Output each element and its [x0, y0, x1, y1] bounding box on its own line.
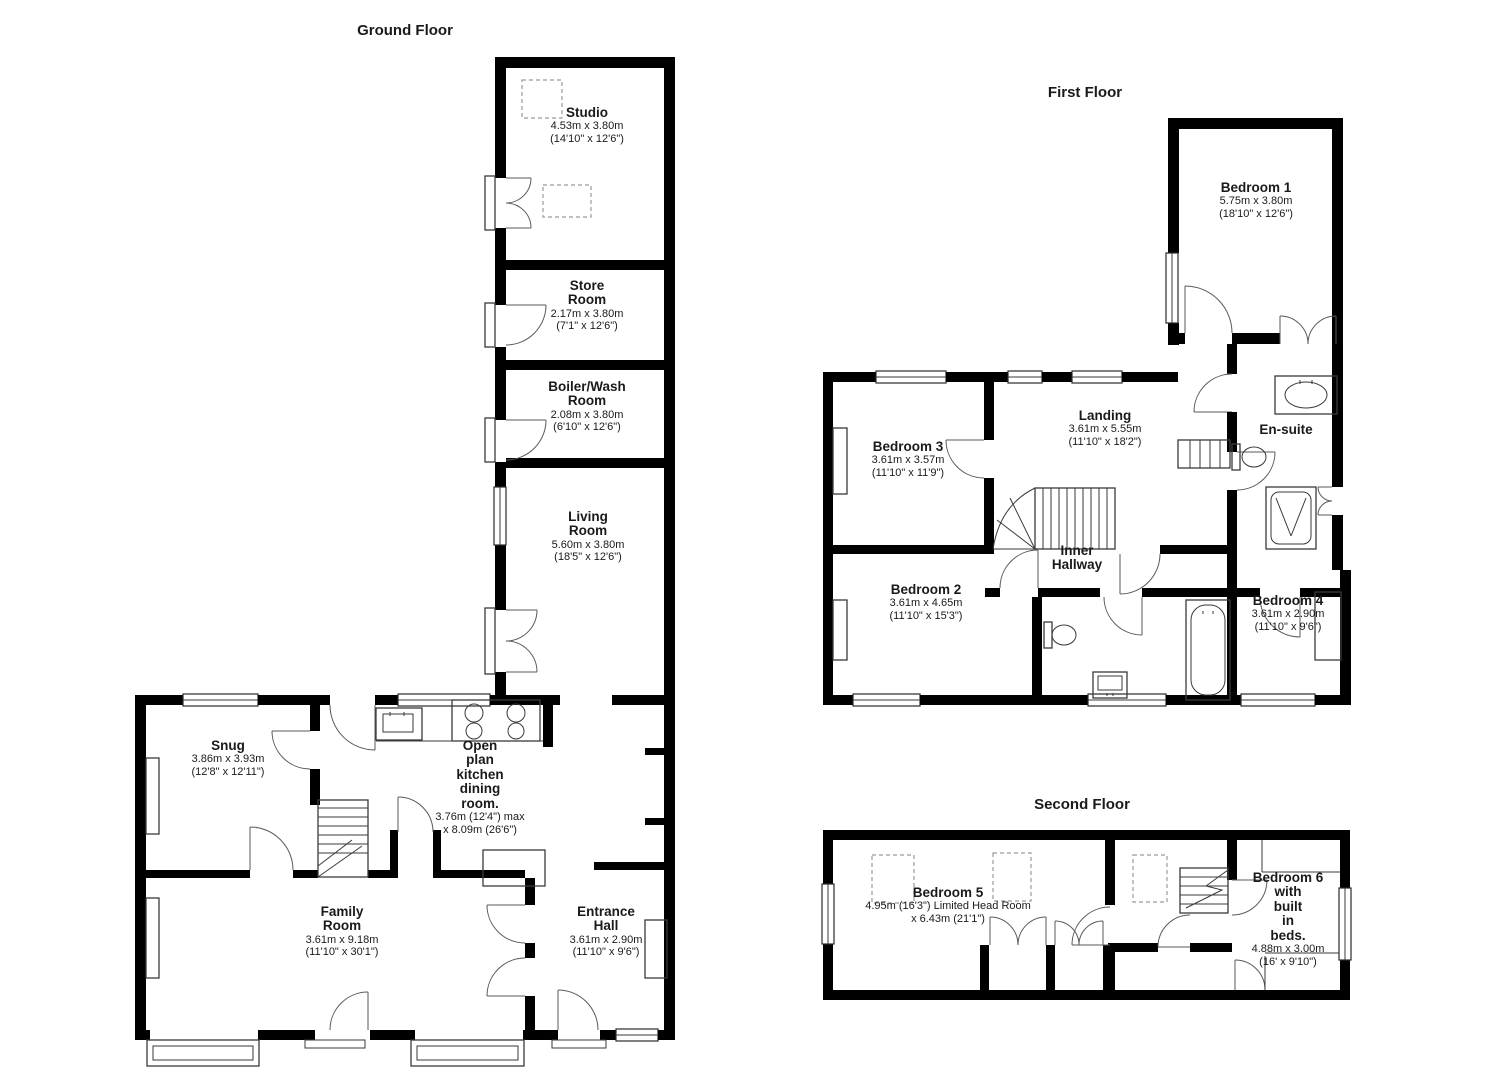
ensuite-door: [1237, 452, 1275, 490]
room-label-open-plan-kitchen: Open plan kitchen dining room. 3.76m (12…: [435, 739, 524, 836]
bedroom5-window: [822, 884, 834, 944]
boiler-room-door: [506, 420, 546, 460]
ensuite-sink: [1275, 376, 1337, 414]
room-dims: 3.61m x 5.55m (11'10" x 18'2"): [1069, 423, 1142, 448]
bedroom1-wardrobe-doors: [1280, 316, 1336, 344]
living-room-double-door: [506, 610, 537, 672]
family-room-garden-door: [330, 992, 368, 1030]
room-dims: 3.61m x 4.65m (11'10" x 15'3"): [890, 597, 963, 622]
room-name: Store Room: [551, 279, 624, 308]
room-name: En-suite: [1259, 423, 1312, 437]
family-room-recess: [146, 898, 159, 978]
room-name: Boiler/Wash Room: [548, 380, 626, 409]
snug-chimney-recess: [146, 758, 159, 834]
bedroom4-window: [1241, 694, 1315, 706]
bedroom1-door: [1185, 286, 1232, 333]
second-floor-stairs: [1180, 868, 1228, 913]
room-label-bedroom-5: Bedroom 5 4.95m (16'3") Limited Head Roo…: [865, 886, 1031, 926]
first-floor-title: First Floor: [1048, 84, 1122, 101]
room-name: Open plan kitchen dining room.: [435, 739, 524, 811]
room-name: Bedroom 2: [890, 583, 963, 597]
bedroom6-built-in-beds: [1262, 840, 1340, 872]
room-label-bedroom-4: Bedroom 4 3.61m x 2.90m (11'10" x 9'6"): [1252, 594, 1325, 634]
snug-door-north: [272, 731, 310, 769]
bedroom6-window: [1339, 888, 1351, 960]
entrance-hall-door-north: [487, 905, 525, 943]
landing-window: [1008, 371, 1042, 383]
kitchen-inner-door: [398, 797, 433, 832]
room-dims: 4.95m (16'3") Limited Head Room x 6.43m …: [865, 900, 1031, 925]
living-room-window: [494, 487, 506, 545]
room-label-living-room: Living Room 5.60m x 3.80m (18'5" x 12'6"…: [552, 510, 625, 564]
bedroom2-window: [853, 694, 920, 706]
room-name: Entrance Hall: [570, 905, 643, 934]
ensuite-cupboard-doors: [1318, 487, 1343, 515]
family-room-bay-window: [411, 1040, 524, 1066]
snug-window: [183, 694, 258, 706]
kitchen-island: [483, 850, 545, 886]
room-name: Bedroom 1: [1219, 181, 1293, 195]
ground-floor-title: Ground Floor: [357, 22, 453, 39]
bedroom2-chimney-recess: [833, 600, 847, 660]
room-name: Studio: [550, 106, 624, 120]
room-label-bedroom-6: Bedroom 6 with built in beds. 4.88m x 3.…: [1252, 871, 1325, 968]
entrance-hall-cupboard: [645, 920, 667, 978]
room-dims: 5.75m x 3.80m (18'10" x 12'6"): [1219, 195, 1293, 220]
bathroom-bathtub: [1186, 600, 1230, 700]
room-dims: 3.61m x 9.18m (11'10" x 30'1"): [306, 934, 379, 959]
ground-floor-stairs: [318, 800, 368, 877]
room-label-boiler-wash-room: Boiler/Wash Room 2.08m x 3.80m (6'10" x …: [548, 380, 626, 434]
bathroom-toilet: [1044, 622, 1076, 648]
room-label-entrance-hall: Entrance Hall 3.61m x 2.90m (11'10" x 9'…: [570, 905, 643, 959]
ensuite-toilet: [1232, 444, 1266, 470]
room-name: Snug: [192, 739, 265, 753]
room-dims: 3.61m x 3.57m (11'10" x 11'9"): [872, 454, 945, 479]
floorplan-page: Ground Floor First Floor Second Floor St…: [0, 0, 1485, 1080]
bedroom3-door: [946, 440, 984, 478]
room-label-landing: Landing 3.61m x 5.55m (11'10" x 18'2"): [1069, 409, 1142, 449]
room-dims: 2.08m x 3.80m (6'10" x 12'6"): [548, 409, 626, 434]
room-label-bedroom-1: Bedroom 1 5.75m x 3.80m (18'10" x 12'6"): [1219, 181, 1293, 221]
family-room-bay-window: [147, 1040, 259, 1066]
landing-vestibule-door: [1194, 374, 1232, 412]
studio-dashed-item: [543, 185, 591, 217]
store-room-door: [506, 305, 546, 345]
room-name: Bedroom 5: [865, 886, 1031, 900]
room-dims: 3.76m (12'4") max x 8.09m (26'6"): [435, 811, 524, 836]
studio-double-door: [506, 178, 531, 228]
room-label-studio: Studio 4.53m x 3.80m (14'10" x 12'6"): [550, 106, 624, 146]
landing-window: [1072, 371, 1122, 383]
room-label-family-room: Family Room 3.61m x 9.18m (11'10" x 30'1…: [306, 905, 379, 959]
bedroom1-window: [1166, 253, 1178, 323]
first-floor-stairs: [993, 488, 1115, 549]
garden-door-threshold: [305, 1040, 365, 1048]
room-label-bedroom-3: Bedroom 3 3.61m x 3.57m (11'10" x 11'9"): [872, 440, 945, 480]
room-label-ensuite: En-suite: [1259, 423, 1312, 437]
room-dims: 2.17m x 3.80m (7'1" x 12'6"): [551, 308, 624, 333]
entrance-hall-door-south: [487, 958, 525, 996]
room-name: Living Room: [552, 510, 625, 539]
snug-door-south: [250, 827, 293, 870]
bathroom-door: [1104, 597, 1142, 635]
room-dims: 3.86m x 3.93m (12'8" x 12'11"): [192, 753, 265, 778]
bedroom5-door: [1072, 907, 1110, 945]
room-name: Inner Hallway: [1052, 544, 1102, 573]
kitchen-back-door: [330, 705, 375, 750]
skylight-dashed: [1133, 855, 1167, 902]
room-dims: 4.53m x 3.80m (14'10" x 12'6"): [550, 120, 624, 145]
room-name: Family Room: [306, 905, 379, 934]
eaves-cupboard-doors: [1055, 921, 1103, 945]
front-door-threshold: [552, 1040, 606, 1048]
kitchen-sink: [376, 708, 422, 740]
front-door: [558, 990, 598, 1030]
bedroom3-window: [876, 371, 946, 383]
room-name: Bedroom 6 with built in beds.: [1252, 871, 1325, 943]
room-dims: 5.60m x 3.80m (18'5" x 12'6"): [552, 539, 625, 564]
room-name: Bedroom 3: [872, 440, 945, 454]
room-label-store-room: Store Room 2.17m x 3.80m (7'1" x 12'6"): [551, 279, 624, 333]
room-name: Bedroom 4: [1252, 594, 1325, 608]
ensuite-shower: [1266, 487, 1316, 549]
room-dims: 3.61m x 2.90m (11'10" x 9'6"): [1252, 608, 1325, 633]
bedroom3-chimney-recess: [833, 428, 847, 494]
stairs-to-second-floor: [1178, 440, 1230, 468]
room-label-bedroom-2: Bedroom 2 3.61m x 4.65m (11'10" x 15'3"): [890, 583, 963, 623]
landing-store-door: [1158, 915, 1190, 947]
second-floor-title: Second Floor: [1034, 796, 1130, 813]
room-label-snug: Snug 3.86m x 3.93m (12'8" x 12'11"): [192, 739, 265, 779]
room-dims: 3.61m x 2.90m (11'10" x 9'6"): [570, 934, 643, 959]
bedroom2-door: [1000, 550, 1038, 588]
room-name: Landing: [1069, 409, 1142, 423]
room-dims: 4.88m x 3.00m (16' x 9'10"): [1252, 943, 1325, 968]
room-label-inner-hallway: Inner Hallway: [1052, 544, 1102, 573]
entrance-hall-window: [616, 1029, 658, 1041]
